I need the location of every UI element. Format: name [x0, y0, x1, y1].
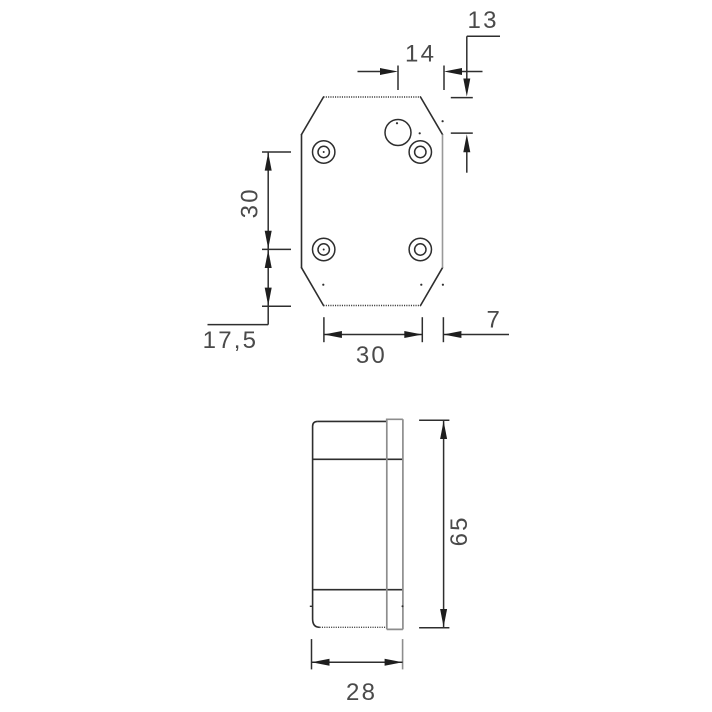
svg-text:14: 14 — [405, 41, 436, 68]
svg-text:28: 28 — [346, 679, 377, 706]
svg-text:65: 65 — [446, 515, 473, 546]
svg-text:13: 13 — [468, 7, 499, 34]
svg-text:7: 7 — [487, 306, 503, 333]
svg-text:30: 30 — [236, 187, 263, 218]
svg-text:30: 30 — [356, 342, 387, 369]
svg-text:17,5: 17,5 — [203, 327, 259, 354]
